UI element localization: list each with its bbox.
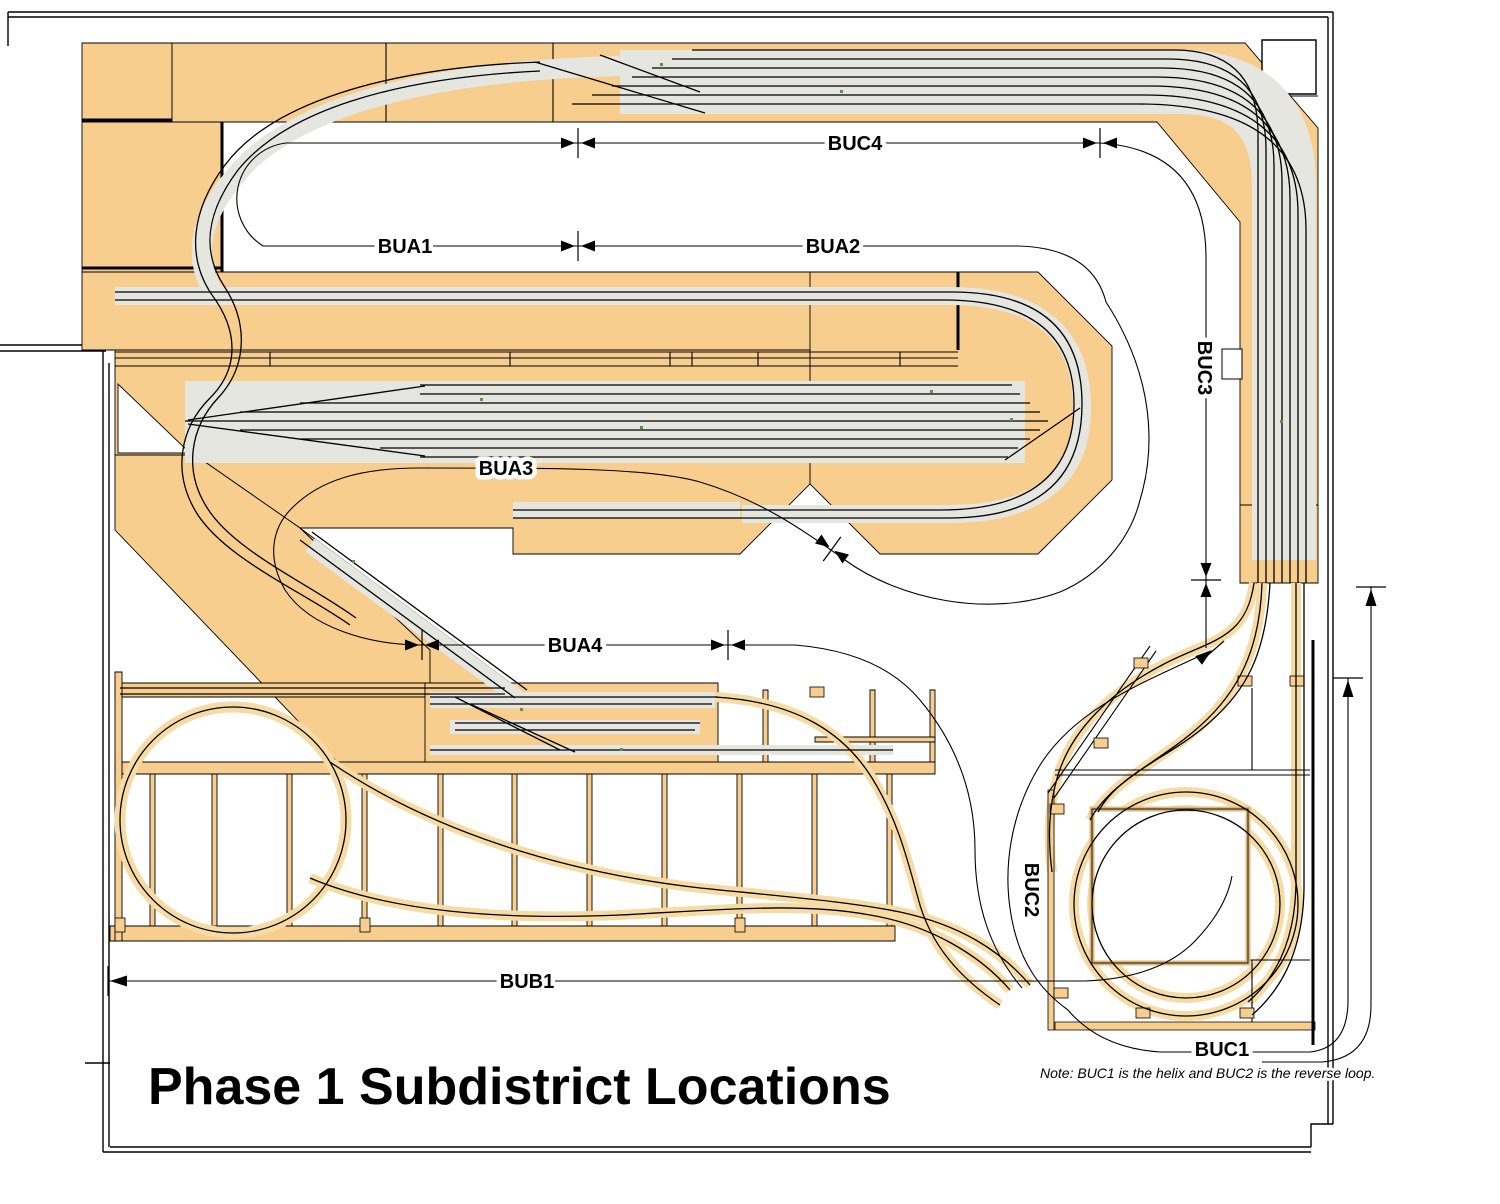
dimension-arrow xyxy=(561,231,595,261)
dimension-arrow xyxy=(1366,589,1377,606)
label-bua2: BUA2 xyxy=(806,236,860,258)
label-bua4: BUA4 xyxy=(548,635,603,657)
buc3-tab xyxy=(1222,349,1242,379)
track-plan-canvas: BUC4 BUA1 BUA2 BUA3 BUA4 BUB1 BUC3 BUC2 … xyxy=(0,0,1500,1204)
label-buc4: BUC4 xyxy=(828,133,883,155)
track-plan-svg: BUC4 BUA1 BUA2 BUA3 BUA4 BUB1 BUC3 BUC2 … xyxy=(0,0,1500,1204)
note-text: Note: BUC1 is the helix and BUC2 is the … xyxy=(1040,1065,1375,1081)
label-bua3: BUA3 xyxy=(479,458,533,480)
dimension-arrow xyxy=(1343,680,1354,697)
dimension-arrow xyxy=(110,976,127,987)
dimension-arrow xyxy=(1083,128,1117,158)
label-buc2: BUC2 xyxy=(1020,863,1042,917)
label-buc3: BUC3 xyxy=(1193,341,1215,395)
label-bua1: BUA1 xyxy=(378,236,432,258)
dimension-arrow xyxy=(1191,563,1221,597)
page-title: Phase 1 Subdistrict Locations xyxy=(148,1058,891,1116)
dimension-arrow xyxy=(809,527,854,571)
label-bub1: BUB1 xyxy=(500,971,554,993)
label-buc1: BUC1 xyxy=(1195,1039,1249,1061)
dimension-arrow xyxy=(711,630,745,660)
dimension-arrow xyxy=(561,128,595,158)
